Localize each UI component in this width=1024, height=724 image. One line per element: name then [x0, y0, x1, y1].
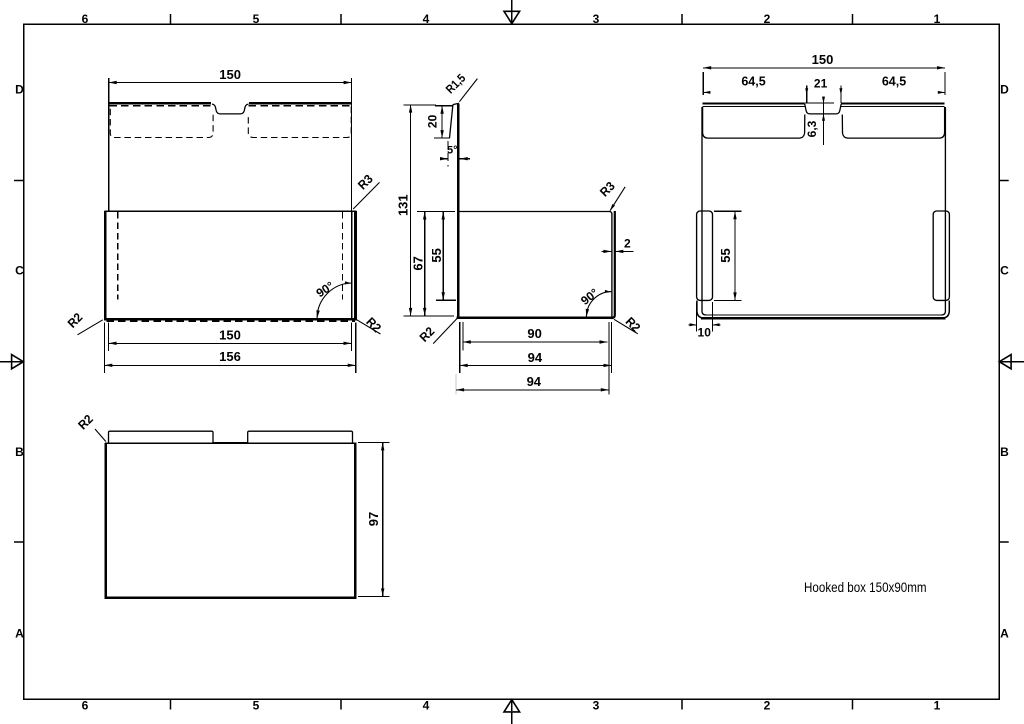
- svg-text:5: 5: [253, 699, 260, 713]
- svg-text:4: 4: [423, 12, 430, 26]
- svg-text:156: 156: [219, 349, 241, 364]
- svg-text:1: 1: [934, 699, 941, 713]
- svg-text:4: 4: [423, 699, 430, 713]
- svg-text:3: 3: [593, 699, 600, 713]
- svg-text:150: 150: [812, 52, 834, 67]
- svg-text:D: D: [15, 83, 24, 97]
- svg-text:6,3: 6,3: [805, 120, 819, 137]
- svg-text:A: A: [15, 626, 24, 640]
- svg-text:A: A: [1000, 626, 1009, 640]
- svg-text:150: 150: [219, 67, 241, 82]
- svg-text:D: D: [1000, 83, 1009, 97]
- svg-text:94: 94: [528, 350, 543, 365]
- svg-text:131: 131: [396, 194, 411, 216]
- svg-text:2: 2: [764, 699, 771, 713]
- svg-text:C: C: [1000, 264, 1009, 278]
- svg-text:21: 21: [814, 77, 828, 91]
- svg-text:Hooked box 150x90mm: Hooked box 150x90mm: [804, 580, 927, 595]
- svg-text:64,5: 64,5: [882, 75, 906, 89]
- svg-text:3: 3: [593, 12, 600, 26]
- svg-text:5: 5: [253, 12, 260, 26]
- svg-text:94: 94: [527, 374, 542, 389]
- svg-text:2: 2: [764, 12, 771, 26]
- svg-text:55: 55: [718, 248, 733, 262]
- svg-text:90: 90: [527, 326, 541, 341]
- svg-text:B: B: [1000, 445, 1009, 459]
- svg-text:64,5: 64,5: [741, 75, 765, 89]
- svg-text:67: 67: [411, 256, 426, 270]
- svg-text:B: B: [15, 445, 24, 459]
- svg-text:6: 6: [82, 699, 89, 713]
- svg-text:10: 10: [698, 325, 712, 339]
- svg-text:6: 6: [82, 12, 89, 26]
- svg-text:97: 97: [366, 512, 381, 526]
- svg-text:55: 55: [429, 248, 444, 262]
- svg-text:20: 20: [426, 114, 440, 128]
- svg-text:5°: 5°: [447, 144, 458, 156]
- svg-text:1: 1: [934, 12, 941, 26]
- svg-text:150: 150: [219, 327, 241, 342]
- svg-text:C: C: [15, 264, 24, 278]
- svg-text:2: 2: [624, 237, 631, 251]
